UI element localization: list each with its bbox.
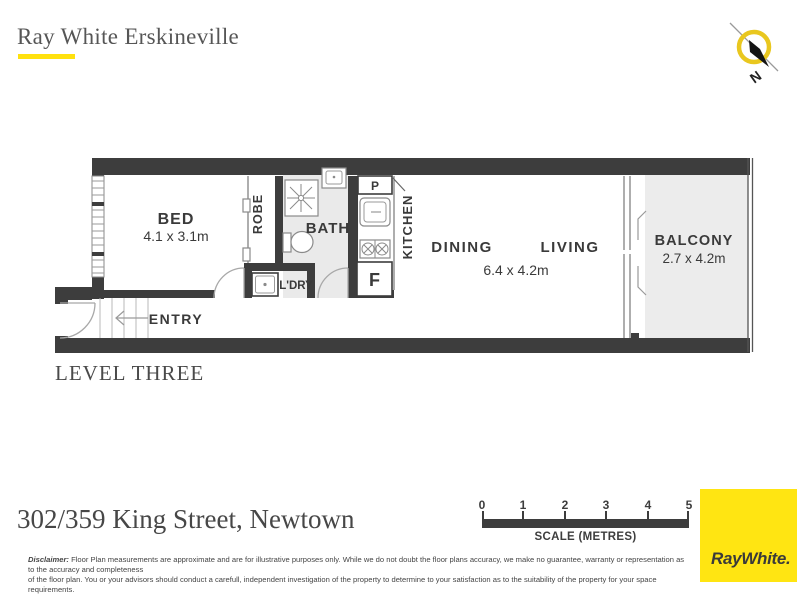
pantry-label: P bbox=[371, 179, 379, 193]
compass-icon: N bbox=[730, 23, 778, 86]
sink-icon bbox=[360, 198, 390, 226]
raywhite-logo: RayWhite. bbox=[700, 489, 797, 582]
scale-tick-label: 4 bbox=[645, 498, 652, 512]
kitchen-label: KITCHEN bbox=[400, 195, 415, 260]
basin-icon bbox=[322, 168, 346, 188]
robe-label: ROBE bbox=[251, 194, 265, 234]
bed-dims: 4.1 x 3.1m bbox=[143, 228, 208, 244]
pantry-cupboard bbox=[358, 176, 405, 194]
laundry-label: L'DRY bbox=[279, 280, 313, 292]
fridge-label: F bbox=[369, 270, 380, 290]
raywhite-logo-text: RayWhite. bbox=[711, 549, 790, 569]
scale-tick-label: 1 bbox=[520, 498, 527, 512]
bed-door bbox=[214, 268, 244, 298]
entry-door bbox=[60, 303, 95, 338]
balcony-label: BALCONY bbox=[655, 233, 734, 249]
scale-tick-label: 0 bbox=[479, 498, 486, 512]
bed-window bbox=[92, 176, 104, 277]
scale-bar-rule bbox=[482, 519, 689, 528]
address: 302/359 King Street, Newtown bbox=[17, 504, 354, 535]
scale-bar: 0 1 2 3 4 5 SCALE (METRES) bbox=[482, 498, 689, 546]
robe-front bbox=[243, 176, 250, 263]
disclaimer-label: Disclaimer: bbox=[28, 555, 69, 564]
disclaimer: Disclaimer: Floor Plan measurements are … bbox=[28, 555, 690, 595]
slider-arrow-up bbox=[638, 211, 646, 240]
dining-label: DINING bbox=[431, 239, 493, 256]
washing-machine-icon bbox=[252, 273, 278, 296]
living-dims: 6.4 x 4.2m bbox=[483, 262, 548, 278]
balcony-railing bbox=[748, 158, 753, 352]
scale-caption: SCALE (METRES) bbox=[482, 531, 689, 543]
entry-stairs bbox=[100, 298, 148, 338]
cooktop-icon bbox=[360, 240, 390, 258]
scale-tick-label: 3 bbox=[603, 498, 610, 512]
balcony-sliding-door bbox=[624, 176, 646, 338]
bath-label: BATH bbox=[306, 220, 351, 237]
level-label: LEVEL THREE bbox=[55, 361, 204, 386]
shower-icon bbox=[285, 180, 318, 216]
bed-label: BED bbox=[158, 211, 195, 228]
scale-tick-label: 2 bbox=[562, 498, 569, 512]
slider-arrow-down bbox=[638, 266, 646, 295]
living-label: LIVING bbox=[540, 239, 599, 256]
disclaimer-line2: of the floor plan. You or your advisors … bbox=[28, 575, 657, 594]
balcony-dims: 2.7 x 4.2m bbox=[662, 251, 725, 266]
scale-tick-label: 5 bbox=[686, 498, 693, 512]
entry-label: ENTRY bbox=[149, 311, 203, 327]
compass-north-label: N bbox=[747, 67, 765, 86]
disclaimer-line1: Floor Plan measurements are approximate … bbox=[28, 555, 684, 574]
